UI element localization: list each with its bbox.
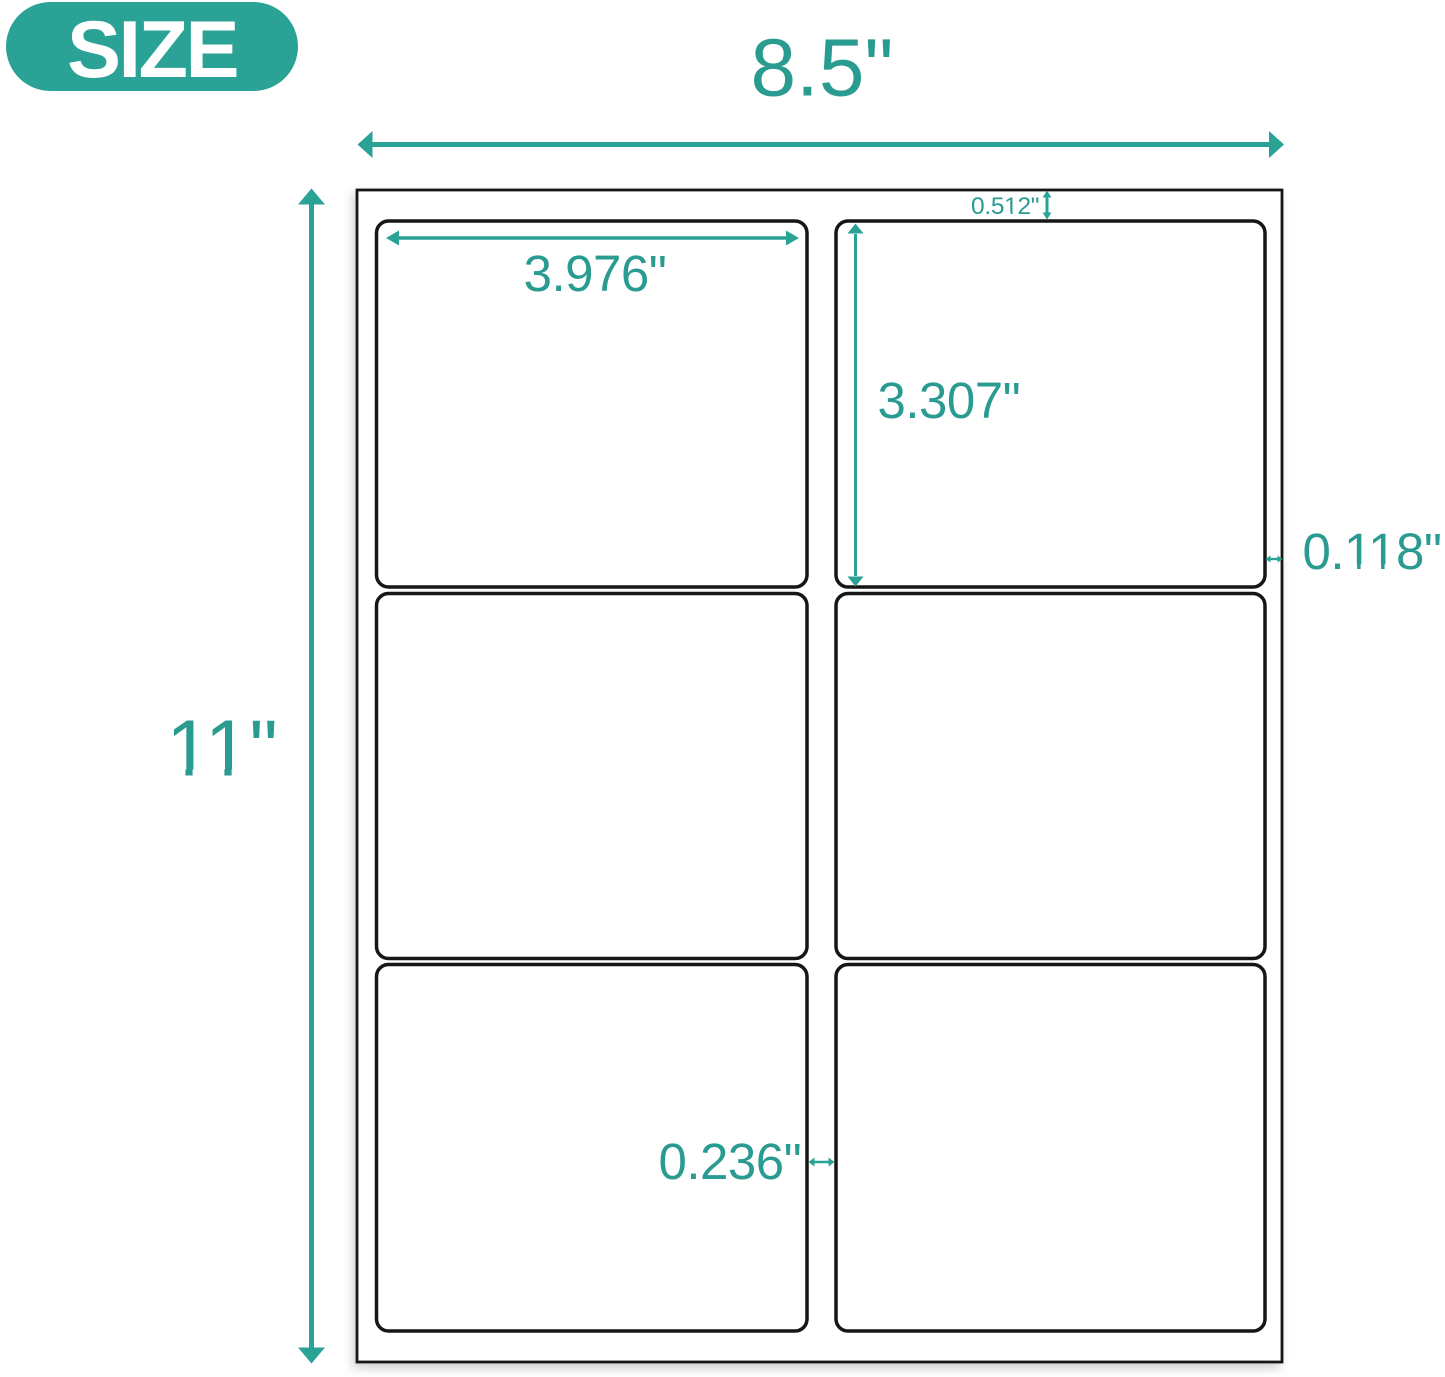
- svg-text:3.307": 3.307": [878, 372, 1021, 429]
- svg-text:3.976": 3.976": [524, 245, 667, 302]
- svg-text:0.236": 0.236": [659, 1133, 802, 1190]
- svg-text:8.5": 8.5": [750, 23, 893, 114]
- svg-text:0.512": 0.512": [971, 193, 1039, 220]
- svg-text:11": 11": [166, 704, 277, 793]
- svg-text:SIZE: SIZE: [67, 5, 237, 95]
- svg-text:0.118": 0.118": [1303, 523, 1442, 580]
